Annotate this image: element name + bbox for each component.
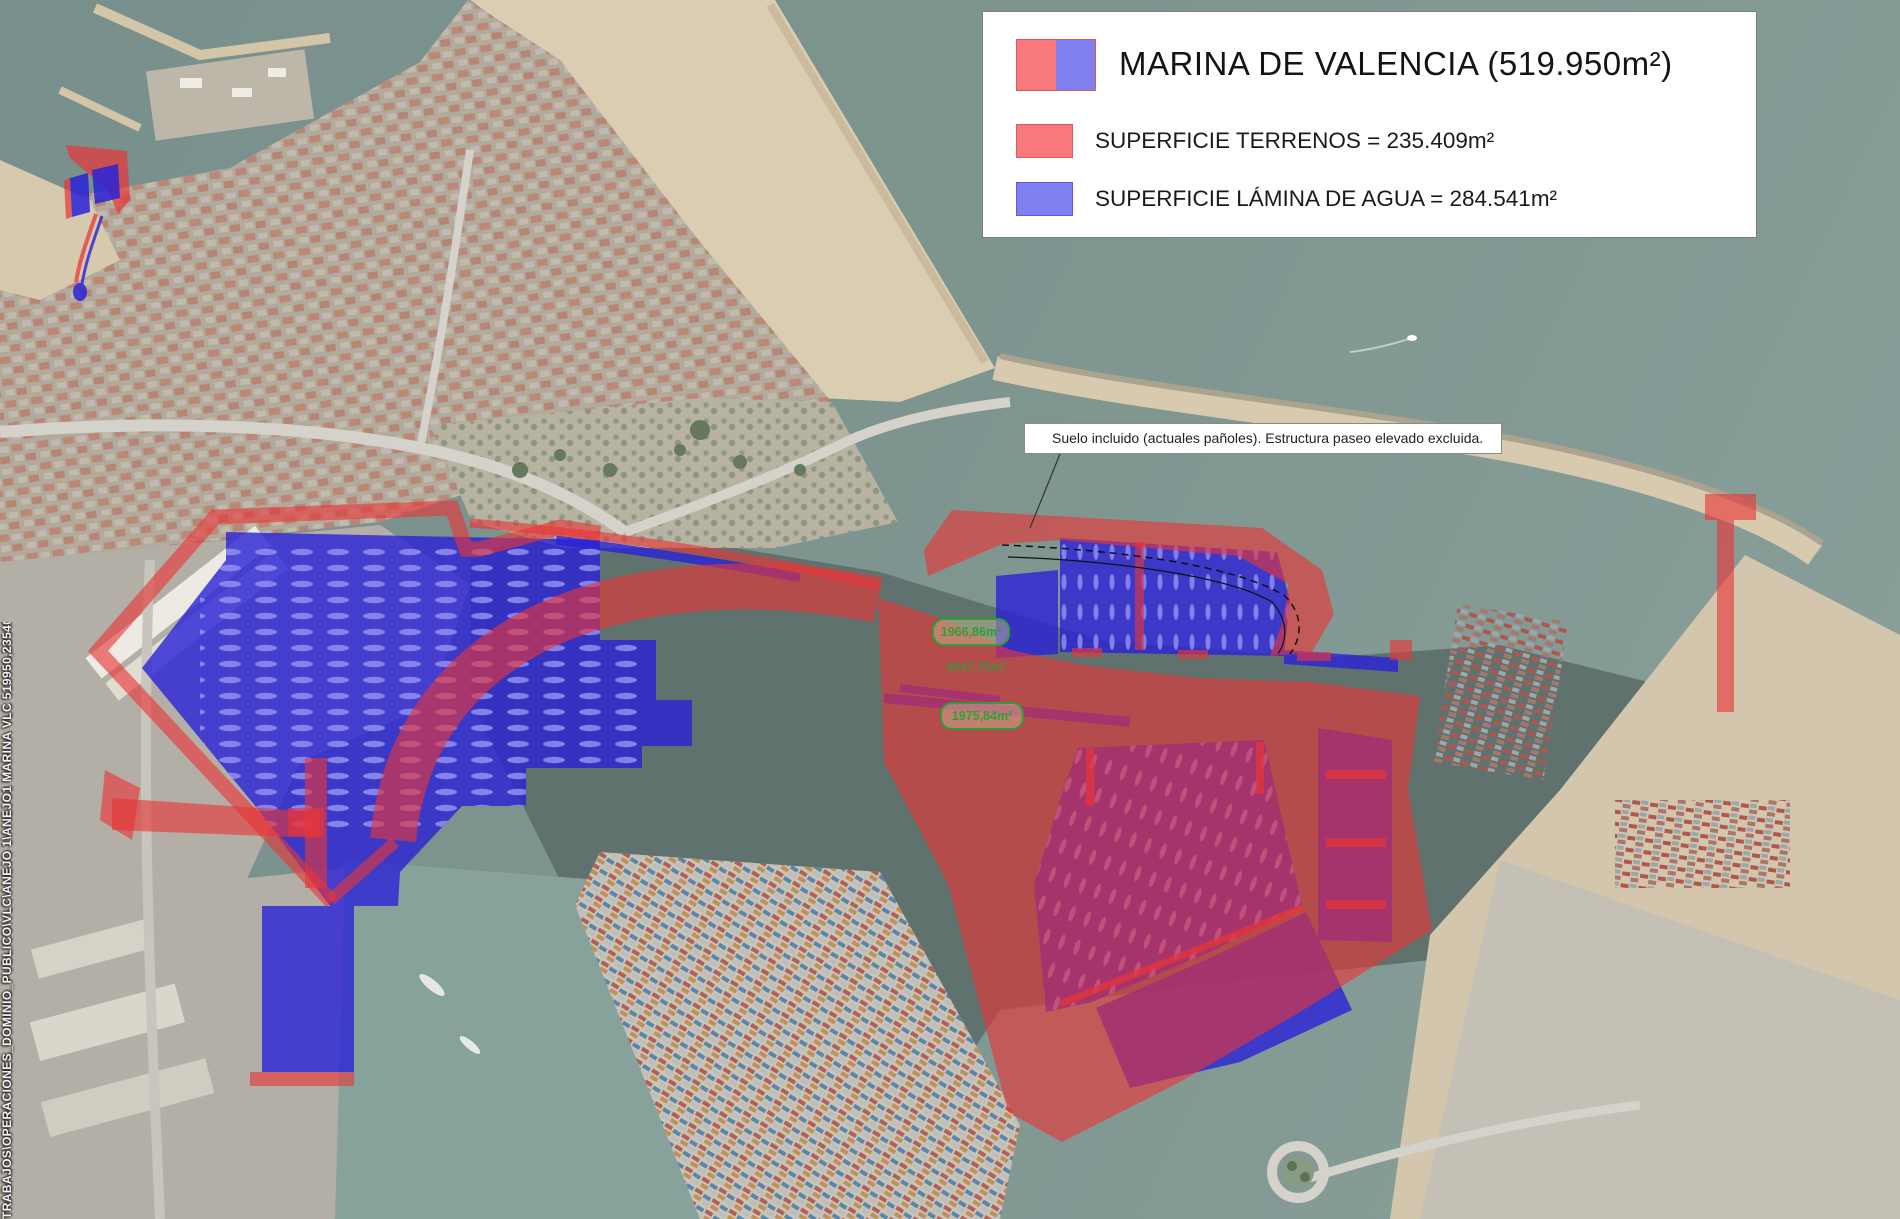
note-box: Suelo incluido (actuales pañoles). Estru… [1024, 423, 1502, 454]
legend-lamina-label: SUPERFICIE LÁMINA DE AGUA = 284.541m² [1095, 182, 1557, 216]
legend-title: MARINA DE VALENCIA (519.950m²) [1119, 39, 1673, 89]
map-canvas: 1966,86m² 3947,70m² 1975,84m² Suelo incl… [0, 0, 1900, 1219]
legend-combined-swatch-icon [1016, 39, 1096, 91]
overview-inset [64, 145, 130, 301]
legend-lamina-swatch-icon [1016, 182, 1073, 216]
area-label-south-quay: 1975,84m² [940, 702, 1024, 730]
area-label-text: 3947,70m² [946, 660, 1006, 674]
area-label-text: 1975,84m² [952, 709, 1012, 723]
legend-terrenos-label: SUPERFICIE TERRENOS = 235.409m² [1095, 124, 1494, 158]
legend-terrenos-swatch-icon [1016, 124, 1073, 158]
area-label-text: 1966,86m² [941, 625, 1001, 639]
note-text: Suelo incluido (actuales pañoles). Estru… [1052, 430, 1483, 446]
file-path-label: TRABAJOS\OPERACIONES_DOMINIO_PUBLICO\VLC… [0, 622, 19, 1219]
legend-box: MARINA DE VALENCIA (519.950m²) SUPERFICI… [982, 11, 1757, 238]
area-label-north-quay: 1966,86m² [932, 618, 1010, 646]
area-label-channel: 3947,70m² [946, 660, 1006, 674]
